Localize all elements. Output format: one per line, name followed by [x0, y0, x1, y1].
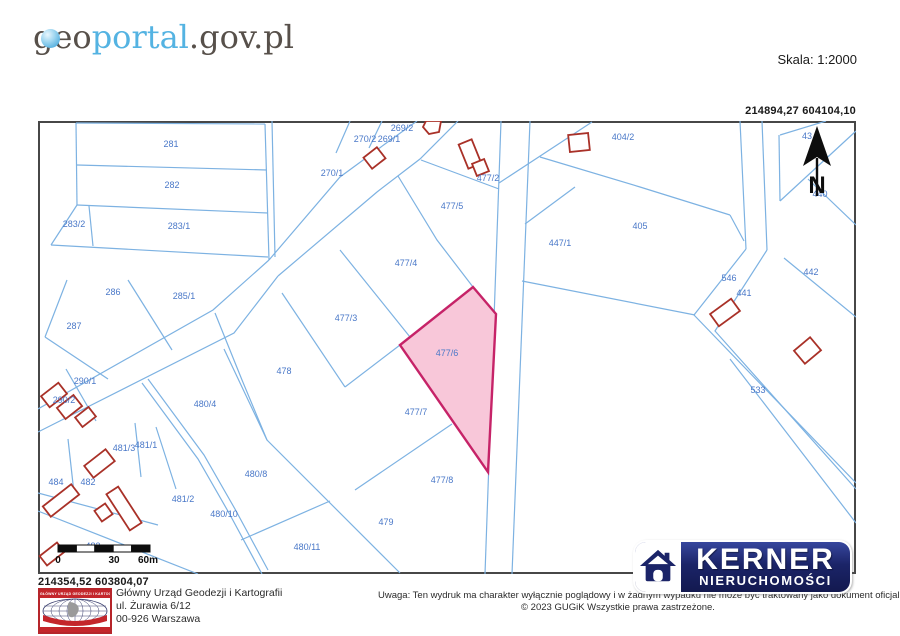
parcel-number-label: 270/2 — [354, 134, 377, 144]
parcel-number-label: 405 — [632, 221, 647, 231]
scalebar-segment — [113, 545, 131, 552]
parcel-number-label: 447/1 — [549, 238, 572, 248]
gugik-logo-title: GŁÓWNY URZĄD GEODEZJI I KARTOGRAFII — [40, 590, 110, 598]
parcel-number-label: 484 — [48, 477, 63, 487]
parcel-number-label: 286 — [105, 287, 120, 297]
parcel-number-label: 482 — [80, 477, 95, 487]
parcel-number-label: 477/7 — [405, 407, 428, 417]
parcel-number-label: 480/10 — [210, 509, 238, 519]
parcel-number-label: 283/1 — [168, 221, 191, 231]
scalebar-segment — [95, 545, 113, 552]
parcel-number-label: 404/2 — [612, 132, 635, 142]
parcel-number-label: 480/11 — [294, 542, 321, 552]
parcel-number-label: 281 — [163, 139, 178, 149]
scalebar-label: 30 — [108, 555, 120, 566]
address-line-1: Główny Urząd Geodezji i Kartografii — [116, 587, 282, 600]
parcel-number-label: 481/2 — [172, 494, 195, 504]
scalebar-label: 60m — [138, 555, 158, 566]
highlighted-parcel-label: 477/6 — [436, 348, 459, 358]
scalebar-segment — [132, 545, 150, 552]
geoportal-globe-icon — [41, 29, 60, 48]
parcel-number-label: 442 — [803, 267, 818, 277]
parcel-number-label: 270/1 — [321, 168, 344, 178]
parcel-number-label: 481/3 — [113, 443, 136, 453]
page: geoportal.gov.pl Skala: 1:2000 214894,27… — [0, 0, 900, 636]
scale-label: Skala: 1:2000 — [777, 52, 857, 67]
address-line-2: ul. Żurawia 6/12 — [116, 600, 282, 613]
parcel-number-label: 285/1 — [173, 291, 196, 301]
gugik-globe-icon — [40, 598, 110, 627]
kerner-subtitle: NIERUCHOMOŚCI — [699, 574, 832, 588]
kerner-logo: KERNER NIERUCHOMOŚCI — [633, 540, 852, 594]
parcel-number-label: 480/8 — [245, 469, 268, 479]
parcel-number-label: 533 — [750, 385, 765, 395]
parcel-number-label: 477/5 — [441, 201, 464, 211]
parcel-number-label: 269/1 — [378, 134, 401, 144]
scalebar-segment — [58, 545, 76, 552]
geoportal-logo: geoportal.gov.pl — [33, 18, 294, 56]
parcel-number-label: 43 — [802, 131, 812, 141]
parcel-number-label: 477/8 — [431, 475, 454, 485]
copyright-notice: © 2023 GUGiK Wszystkie prawa zastrzeżone… — [375, 602, 861, 613]
gugik-address: Główny Urząd Geodezji i Kartografii ul. … — [116, 587, 282, 626]
parcel-number-label: 282 — [164, 180, 179, 190]
parcel-number-label: 477/2 — [477, 173, 500, 183]
geoportal-logo-portal: portal — [92, 18, 189, 56]
building-outline — [568, 133, 590, 152]
parcel-number-label: 269/2 — [391, 123, 414, 133]
geoportal-logo-govpl: .gov.pl — [189, 18, 294, 56]
parcel-number-label: 546 — [721, 273, 736, 283]
parcel-number-label: 290/1 — [74, 376, 97, 386]
parcel-number-label: 480/4 — [194, 399, 217, 409]
parcel-number-label: 479 — [378, 517, 393, 527]
kerner-house-icon — [635, 542, 681, 592]
scalebar-segment — [76, 545, 94, 552]
cadastral-map-canvas[interactable]: 281282283/2283/1269/2270/2269/1270/1477/… — [38, 121, 856, 574]
parcel-number-label: 287 — [66, 321, 81, 331]
parcel-number-label: 290/2 — [53, 395, 76, 405]
kerner-title: KERNER — [696, 546, 835, 574]
address-line-3: 00-926 Warszawa — [116, 613, 282, 626]
parcel-number-label: 283/2 — [63, 219, 86, 229]
parcel-number-label: 441 — [736, 288, 751, 298]
gugik-logo-band — [40, 627, 110, 632]
cadastral-map[interactable]: 281282283/2283/1269/2270/2269/1270/1477/… — [38, 121, 856, 574]
parcel-number-label: 481/1 — [135, 440, 158, 450]
parcel-number-label: 478 — [276, 366, 291, 376]
parcel-number-label: 477/3 — [335, 313, 358, 323]
scalebar-label: 0 — [55, 555, 61, 566]
gugik-logo: GŁÓWNY URZĄD GEODEZJI I KARTOGRAFII — [38, 588, 112, 634]
coordinates-top-right: 214894,27 604104,10 — [745, 105, 856, 117]
parcel-number-label: 477/4 — [395, 258, 418, 268]
